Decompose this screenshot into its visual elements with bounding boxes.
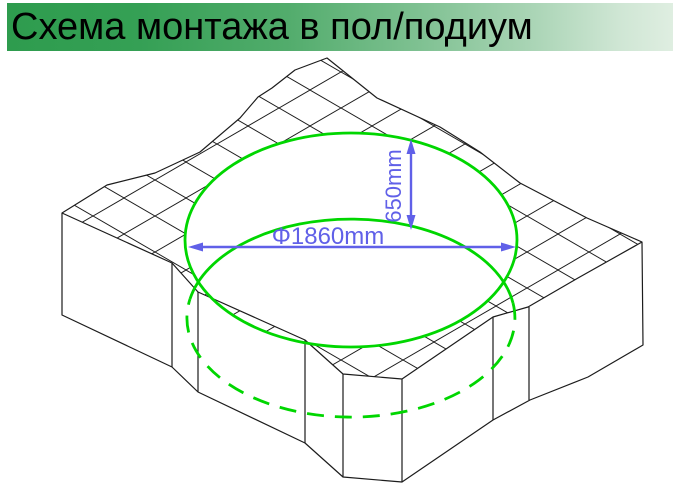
depth-label: 650mm [381,149,406,222]
installation-diagram: Φ1860mm 650mm [0,55,673,499]
diameter-label: Φ1860mm [272,223,385,250]
title-bar: Схема монтажа в пол/подиум [7,3,673,51]
depth-dimension: 650mm [381,139,416,230]
arrowhead-right [501,243,516,252]
diameter-dimension: Φ1860mm [188,223,516,252]
arrowhead-left [188,243,203,252]
page-title: Схема монтажа в пол/подиум [7,3,533,51]
